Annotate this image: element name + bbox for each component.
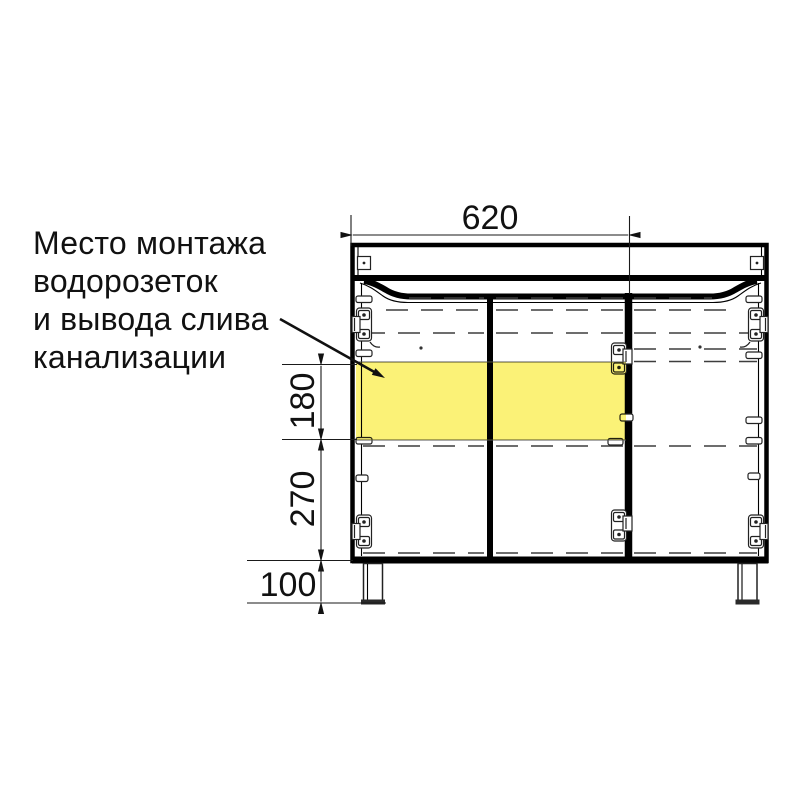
outlet-zone [356, 362, 626, 440]
leg-left [361, 564, 385, 605]
dim-label-270: 270 [284, 471, 322, 528]
dim-label-620: 620 [462, 199, 519, 237]
dim-label-180: 180 [284, 373, 322, 430]
cabinet-drawing: 620 180 270 100 [0, 0, 800, 800]
legs [361, 564, 760, 605]
top-fixing-right [751, 257, 764, 270]
dim-label-100: 100 [260, 566, 317, 604]
outlet-zone-highlight [356, 362, 626, 440]
vanity-installation-diagram: Место монтажа водорозеток и вывода слива… [0, 0, 800, 800]
top-fixing-left [358, 257, 371, 270]
leg-right [736, 564, 760, 605]
